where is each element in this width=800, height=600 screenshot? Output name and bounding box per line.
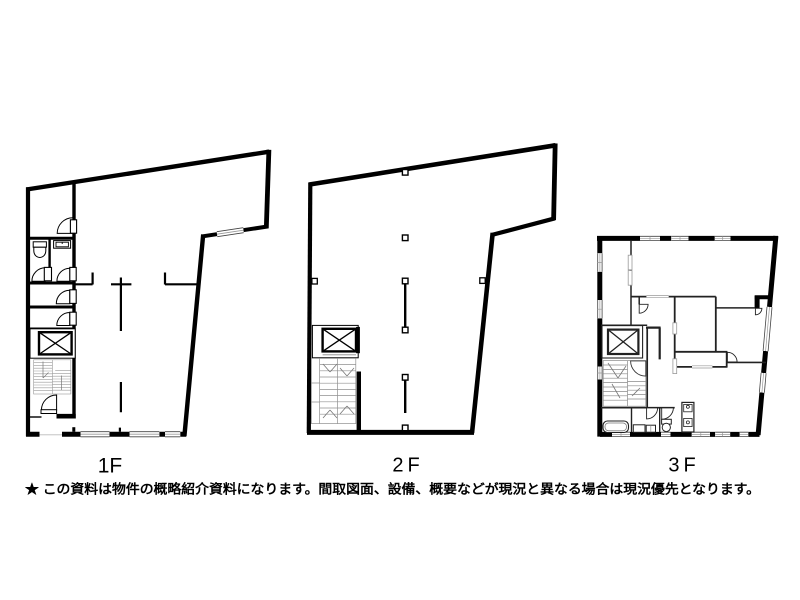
svg-text:2 F: 2 F: [392, 455, 419, 477]
svg-text:★ この資料は物件の概略紹介資料になります。間取図面、設備、: ★ この資料は物件の概略紹介資料になります。間取図面、設備、概要などが現況と異な…: [25, 481, 760, 497]
svg-text:1F: 1F: [98, 455, 123, 478]
svg-text:3 F: 3 F: [668, 455, 695, 477]
